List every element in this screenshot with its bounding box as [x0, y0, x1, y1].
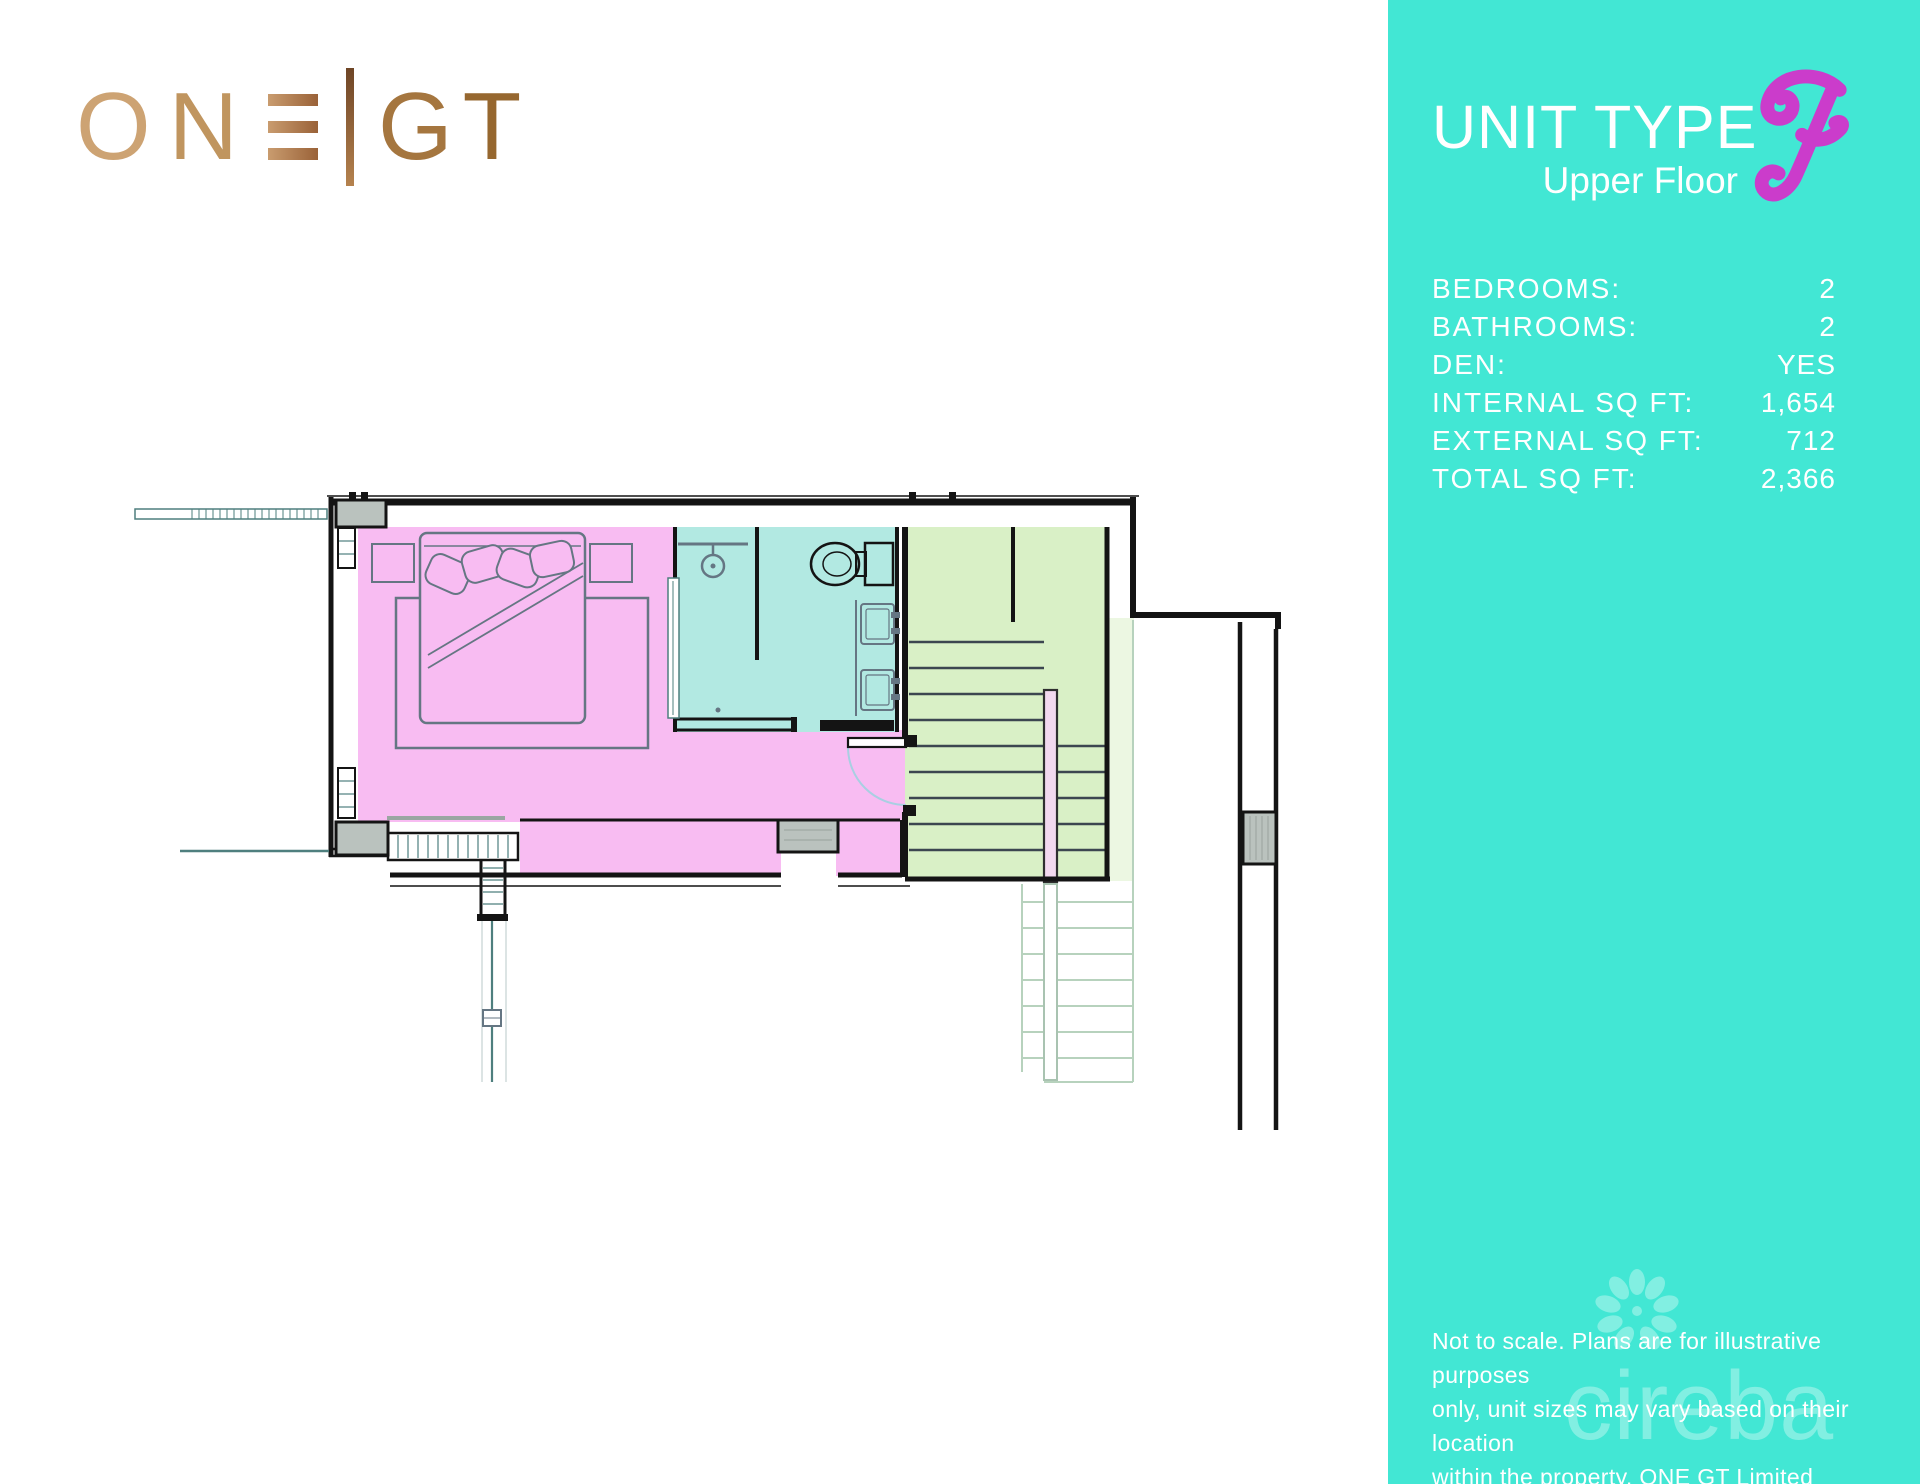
unit-letter-script-f	[1738, 62, 1862, 212]
stair-area	[905, 527, 1108, 881]
disclaimer-text: Not to scale. Plans are for illustrative…	[1432, 1324, 1910, 1484]
spec-row-external-sqft: EXTERNAL SQ FT: 712	[1432, 426, 1836, 455]
page-title: UNIT TYPE	[1432, 92, 1757, 162]
stair-railing	[1044, 690, 1057, 882]
unit-spec-list: BEDROOMS: 2 BATHROOMS: 2 DEN: YES INTERN…	[1432, 274, 1836, 502]
louver-strip-icon	[135, 509, 327, 519]
south-window-icon	[387, 818, 518, 860]
stair-ghost-strip	[1108, 618, 1134, 881]
info-sidebar: UNIT TYPE Upper Floor BEDROOMS: 2 BATHRO…	[1388, 0, 1920, 1484]
pocket-door	[820, 720, 894, 731]
wardrobe-area	[520, 818, 904, 876]
spec-row-bathrooms: BATHROOMS: 2	[1432, 312, 1836, 341]
page-subtitle: Upper Floor	[1432, 160, 1738, 202]
spec-row-internal-sqft: INTERNAL SQ FT: 1,654	[1432, 388, 1836, 417]
brochure-page: O N G T	[0, 0, 1920, 1484]
spec-row-den: DEN: YES	[1432, 350, 1836, 379]
floor-plan-drawing	[0, 0, 1388, 1484]
spec-row-bedrooms: BEDROOMS: 2	[1432, 274, 1836, 303]
spec-row-total-sqft: TOTAL SQ FT: 2,366	[1432, 464, 1836, 493]
west-windows	[338, 528, 355, 818]
wall-gap	[781, 852, 836, 876]
stair-railing-ghost	[1044, 884, 1057, 1080]
glass-partition	[668, 578, 679, 718]
